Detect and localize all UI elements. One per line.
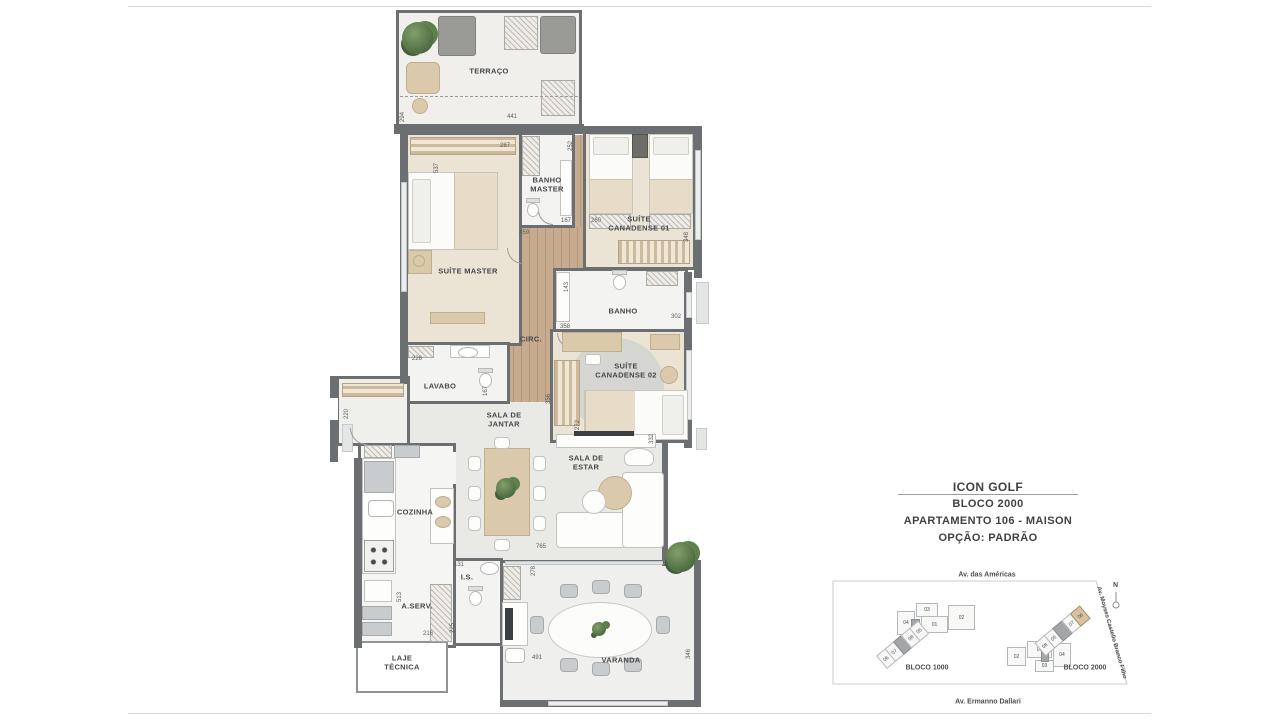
wall [394, 124, 584, 134]
sc02-desk [562, 332, 622, 352]
window [548, 701, 668, 706]
label-cozinha: COZINHA [397, 507, 433, 516]
dim-216: 216 [423, 631, 433, 637]
varanda-chair [530, 616, 544, 634]
label-sala-estar: SALA DE ESTAR [562, 454, 610, 473]
window [401, 182, 407, 292]
terraco-lounger [540, 16, 576, 54]
terraco-dashed-line [400, 96, 578, 97]
bloco1000-label: BLOCO 1000 [906, 665, 949, 672]
block-name: BLOCO 2000 [952, 498, 1023, 510]
plant-icon [496, 478, 516, 498]
hall-closet [342, 383, 404, 397]
dim-459: 459 [519, 230, 529, 236]
unit-02: 02 [1007, 647, 1026, 666]
suite-master-bed [408, 172, 498, 250]
louver-panel [503, 566, 521, 600]
dim-513: 513 [397, 592, 403, 602]
terraco-armchair [406, 62, 440, 94]
sink-icon [480, 562, 499, 575]
dining-chair [533, 486, 546, 501]
shower [522, 136, 540, 176]
tall-cabinet [430, 584, 452, 642]
sc01-dresser [632, 134, 648, 158]
title-rule [898, 494, 1078, 495]
suite-master-bench [430, 312, 485, 324]
window [695, 150, 701, 240]
dining-chair [468, 486, 481, 501]
plant-icon [666, 542, 696, 572]
dining-chair [468, 516, 481, 531]
dim-441: 441 [507, 114, 517, 120]
armchair [624, 448, 654, 466]
varanda-chair [624, 584, 642, 598]
exterior-ledge [696, 282, 709, 324]
laundry-sink [364, 580, 392, 602]
coffee-table [582, 490, 606, 514]
label-aserv: A.SERV. [401, 601, 432, 610]
sc02-wardrobe [554, 360, 580, 426]
unit-03: 03 [916, 603, 938, 617]
bloco2000-label: BLOCO 2000 [1064, 665, 1107, 672]
dim-278: 278 [531, 566, 537, 576]
exterior-ledge [696, 428, 707, 450]
label-suite-master: SUÍTE MASTER [438, 266, 497, 275]
sink-icon [458, 347, 478, 358]
sc01-wardrobe [618, 240, 690, 264]
toilet-icon [526, 198, 540, 217]
dim-537: 537 [434, 163, 440, 173]
unit-02: 02 [948, 605, 975, 630]
dim-348: 348 [684, 232, 690, 242]
dim-332: 332 [649, 434, 655, 444]
dim-346: 346 [686, 649, 692, 659]
varanda-chair [560, 584, 578, 598]
label-suite-canadense-01: SUÍTE CANADENSE 01 [603, 215, 675, 234]
label-lavabo: LAVABO [424, 381, 456, 390]
sink-icon [368, 500, 394, 517]
label-laje-tecnica: LAJE TÉCNICA [378, 654, 426, 673]
sink-icon [505, 648, 525, 663]
flower-icon [592, 622, 606, 636]
dining-chair [468, 456, 481, 471]
tv-console [556, 434, 656, 448]
label-circ: CIRC. [520, 334, 542, 343]
label-banho: BANHO [609, 306, 638, 315]
terraco-side-table [412, 98, 428, 114]
varanda-chair [560, 658, 578, 672]
toilet-icon [612, 270, 627, 290]
option-name: OPÇÃO: PADRÃO [938, 532, 1037, 544]
label-sala-jantar: SALA DE JANTAR [478, 411, 530, 430]
street-top: Av. das Américas [958, 572, 1015, 579]
plant-icon [402, 22, 434, 54]
wall [354, 458, 362, 648]
kitchen-cabinet [364, 445, 392, 458]
banho-vanity [556, 272, 570, 322]
label-is: I.S. [461, 572, 473, 581]
dim-225: 225 [450, 623, 456, 633]
site-map: Av. das Américas Av. Ermanno Dallari Av.… [820, 560, 1140, 715]
dim-765: 765 [536, 544, 546, 550]
dim-226: 226 [412, 356, 422, 362]
toilet-icon [468, 586, 483, 606]
dim-287: 287 [500, 143, 510, 149]
dining-chair [533, 516, 546, 531]
sc02-pouf [660, 366, 678, 384]
fridge [364, 461, 394, 493]
window [686, 292, 692, 318]
label-banho-master: BANHO MASTER [525, 176, 569, 195]
wall [694, 562, 701, 706]
dim-302: 302 [671, 314, 681, 320]
dim-167: 167 [561, 218, 571, 224]
kitchen-opening [453, 452, 456, 484]
dim-356: 356 [546, 394, 552, 404]
grill-icon [505, 608, 513, 640]
dining-chair [494, 539, 510, 551]
tv-icon [574, 431, 634, 436]
stove [364, 540, 394, 572]
dim-358: 358 [560, 324, 570, 330]
label-suite-canadense-02: SUÍTE CANADENSE 02 [590, 362, 662, 381]
lamp-icon [413, 255, 425, 267]
apartment-name: APARTAMENTO 106 - MAISON [904, 515, 1073, 527]
dining-chair [533, 456, 546, 471]
title-block: ICON GOLF BLOCO 2000 APARTAMENTO 106 - M… [860, 460, 1120, 555]
dim-260: 260 [591, 218, 601, 224]
project-title: ICON GOLF [953, 480, 1023, 494]
varanda-chair [656, 616, 670, 634]
sc01-bed-2 [649, 134, 693, 214]
dim-491: 491 [532, 655, 542, 661]
dim-167-lavabo: 167 [483, 386, 489, 396]
wall [584, 126, 700, 134]
terraco-sofa [438, 16, 476, 56]
sliding-glass-door [505, 561, 663, 565]
dim-143: 143 [564, 282, 570, 292]
sc02-shelf [650, 334, 680, 350]
dining-chair [494, 437, 510, 449]
washer [362, 622, 392, 636]
dim-220: 220 [344, 409, 350, 419]
terraco-mat [541, 80, 575, 116]
varanda-chair [592, 580, 610, 594]
washer [362, 606, 392, 620]
basin-icon [435, 516, 451, 528]
label-varanda: VARANDA [601, 655, 640, 664]
street-bottom: Av. Ermanno Dallari [955, 699, 1021, 706]
sc01-bed-1 [589, 134, 633, 214]
kitchen-cabinet [394, 445, 420, 458]
dim-131: 131 [454, 562, 464, 568]
label-terraco: TERRAÇO [469, 66, 508, 75]
dim-272: 272 [575, 420, 581, 430]
dim-294: 294 [400, 112, 406, 122]
dim-252: 252 [568, 141, 574, 151]
entry-door-opening [330, 398, 338, 420]
terraco-mat [504, 16, 538, 50]
shower [646, 271, 678, 286]
site-map-outline [820, 560, 1140, 715]
north-indicator: N [1113, 582, 1118, 589]
basin-icon [435, 496, 451, 508]
